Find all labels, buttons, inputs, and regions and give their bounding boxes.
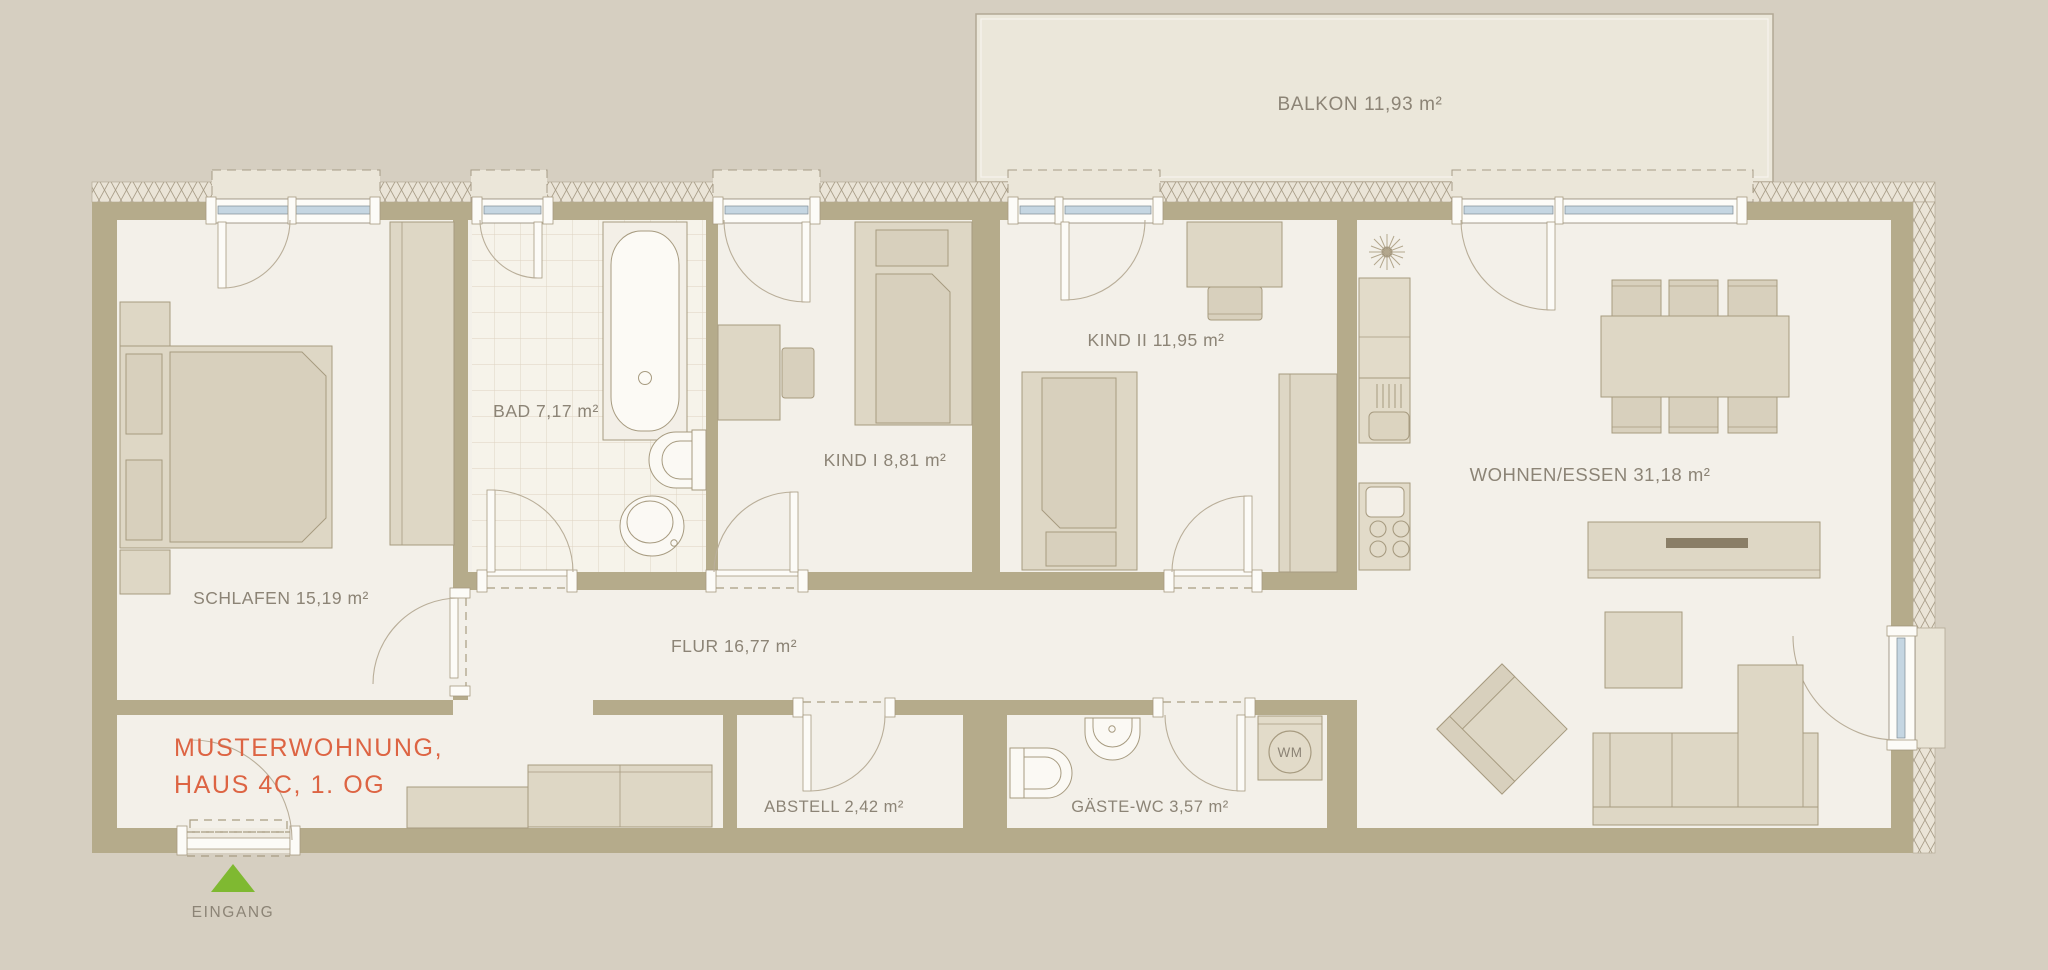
window-glass (218, 206, 288, 214)
exterior-hatch-right (1913, 202, 1935, 853)
sill-kind1 (713, 170, 820, 202)
balcony: BALKON 11,93 m² (976, 14, 1773, 182)
wm-label: WM (1278, 745, 1303, 760)
dining-table (1601, 316, 1789, 397)
door-leaf-kind2 (1244, 496, 1252, 572)
bathtub-basin (611, 231, 679, 431)
wall-left (92, 220, 117, 853)
pillow (1046, 532, 1116, 566)
washbasin (620, 496, 684, 556)
toilet (649, 430, 706, 490)
chair (782, 348, 814, 398)
room-label-abstell: ABSTELL 2,42 m² (764, 798, 904, 816)
ceiling-lamp-icon (1369, 234, 1405, 270)
room-label-bad: BAD 7,17 m² (493, 401, 599, 421)
door-leaf-abstell (803, 715, 811, 791)
balcony-label: BALKON 11,93 m² (1278, 94, 1443, 115)
wall-schlafen-bottom (117, 700, 453, 715)
door-leaf-bad (487, 490, 495, 572)
sill-wohnen (1452, 170, 1753, 202)
wall-abstell-wc (963, 715, 1007, 828)
entrance-label: EINGANG (192, 904, 275, 921)
oven (1369, 412, 1409, 440)
room-label-kind1: KIND I 8,81 m² (824, 450, 947, 470)
tv-screen (1666, 538, 1748, 548)
dining-chair (1612, 280, 1661, 316)
kitchen (1359, 234, 1410, 570)
pillow (126, 354, 162, 434)
blanket (1042, 378, 1116, 528)
pillow (126, 460, 162, 540)
entrance-door-leaf (187, 838, 290, 849)
window-glass (296, 206, 370, 214)
room-label-flur: FLUR 16,77 m² (671, 636, 797, 656)
wall-kind1-kind2 (972, 220, 1000, 572)
coffee-table (1605, 612, 1682, 688)
balcony-step (1915, 628, 1945, 748)
wall-wc-right (1327, 700, 1357, 828)
wall-bad-kind1 (706, 220, 718, 572)
wardrobe (390, 222, 454, 545)
wall-bottom (92, 828, 1913, 853)
wall-right (1891, 220, 1913, 853)
room-label-wc: GÄSTE-WC 3,57 m² (1071, 798, 1228, 816)
wardrobe (1279, 374, 1337, 572)
dining-chair (1728, 397, 1777, 433)
desk (1187, 222, 1282, 287)
room-label-schlafen: SCHLAFEN 15,19 m² (193, 588, 369, 608)
title-line1: MUSTERWOHNUNG, (174, 734, 443, 762)
kitchen-cabinet (1359, 278, 1410, 378)
dining-chair (1669, 397, 1718, 433)
room-label-wohnen: WOHNEN/ESSEN 31,18 m² (1470, 464, 1711, 485)
title-line2: HAUS 4C, 1. OG (174, 771, 385, 799)
hall-cabinet (407, 787, 528, 828)
floor-plan-page: BALKON 11,93 m² (0, 0, 2048, 970)
door-leaf-wc (1237, 715, 1245, 791)
dining-chair (1612, 397, 1661, 433)
door-leaf-kind1 (790, 492, 798, 572)
blanket (876, 274, 950, 423)
dining-chair (1669, 280, 1718, 316)
desk (718, 325, 780, 420)
room-label-kind2: KIND II 11,95 m² (1087, 330, 1224, 350)
sill-kind2 (1008, 170, 1160, 202)
wall-abstell-left (723, 715, 737, 828)
wall-kind2-kitchen (1337, 220, 1357, 572)
dining-chair (1728, 280, 1777, 316)
pillow (876, 230, 948, 266)
chair (1208, 287, 1262, 320)
washing-machine: WM (1258, 716, 1322, 780)
blanket (170, 352, 326, 542)
nightstand (120, 302, 170, 346)
window-leaf (218, 222, 226, 288)
floor-plan: BALKON 11,93 m² (0, 0, 2048, 970)
toilet (1010, 748, 1072, 798)
sink (1366, 487, 1404, 517)
door-leaf-schlafen (450, 598, 458, 678)
nightstand (120, 550, 170, 594)
